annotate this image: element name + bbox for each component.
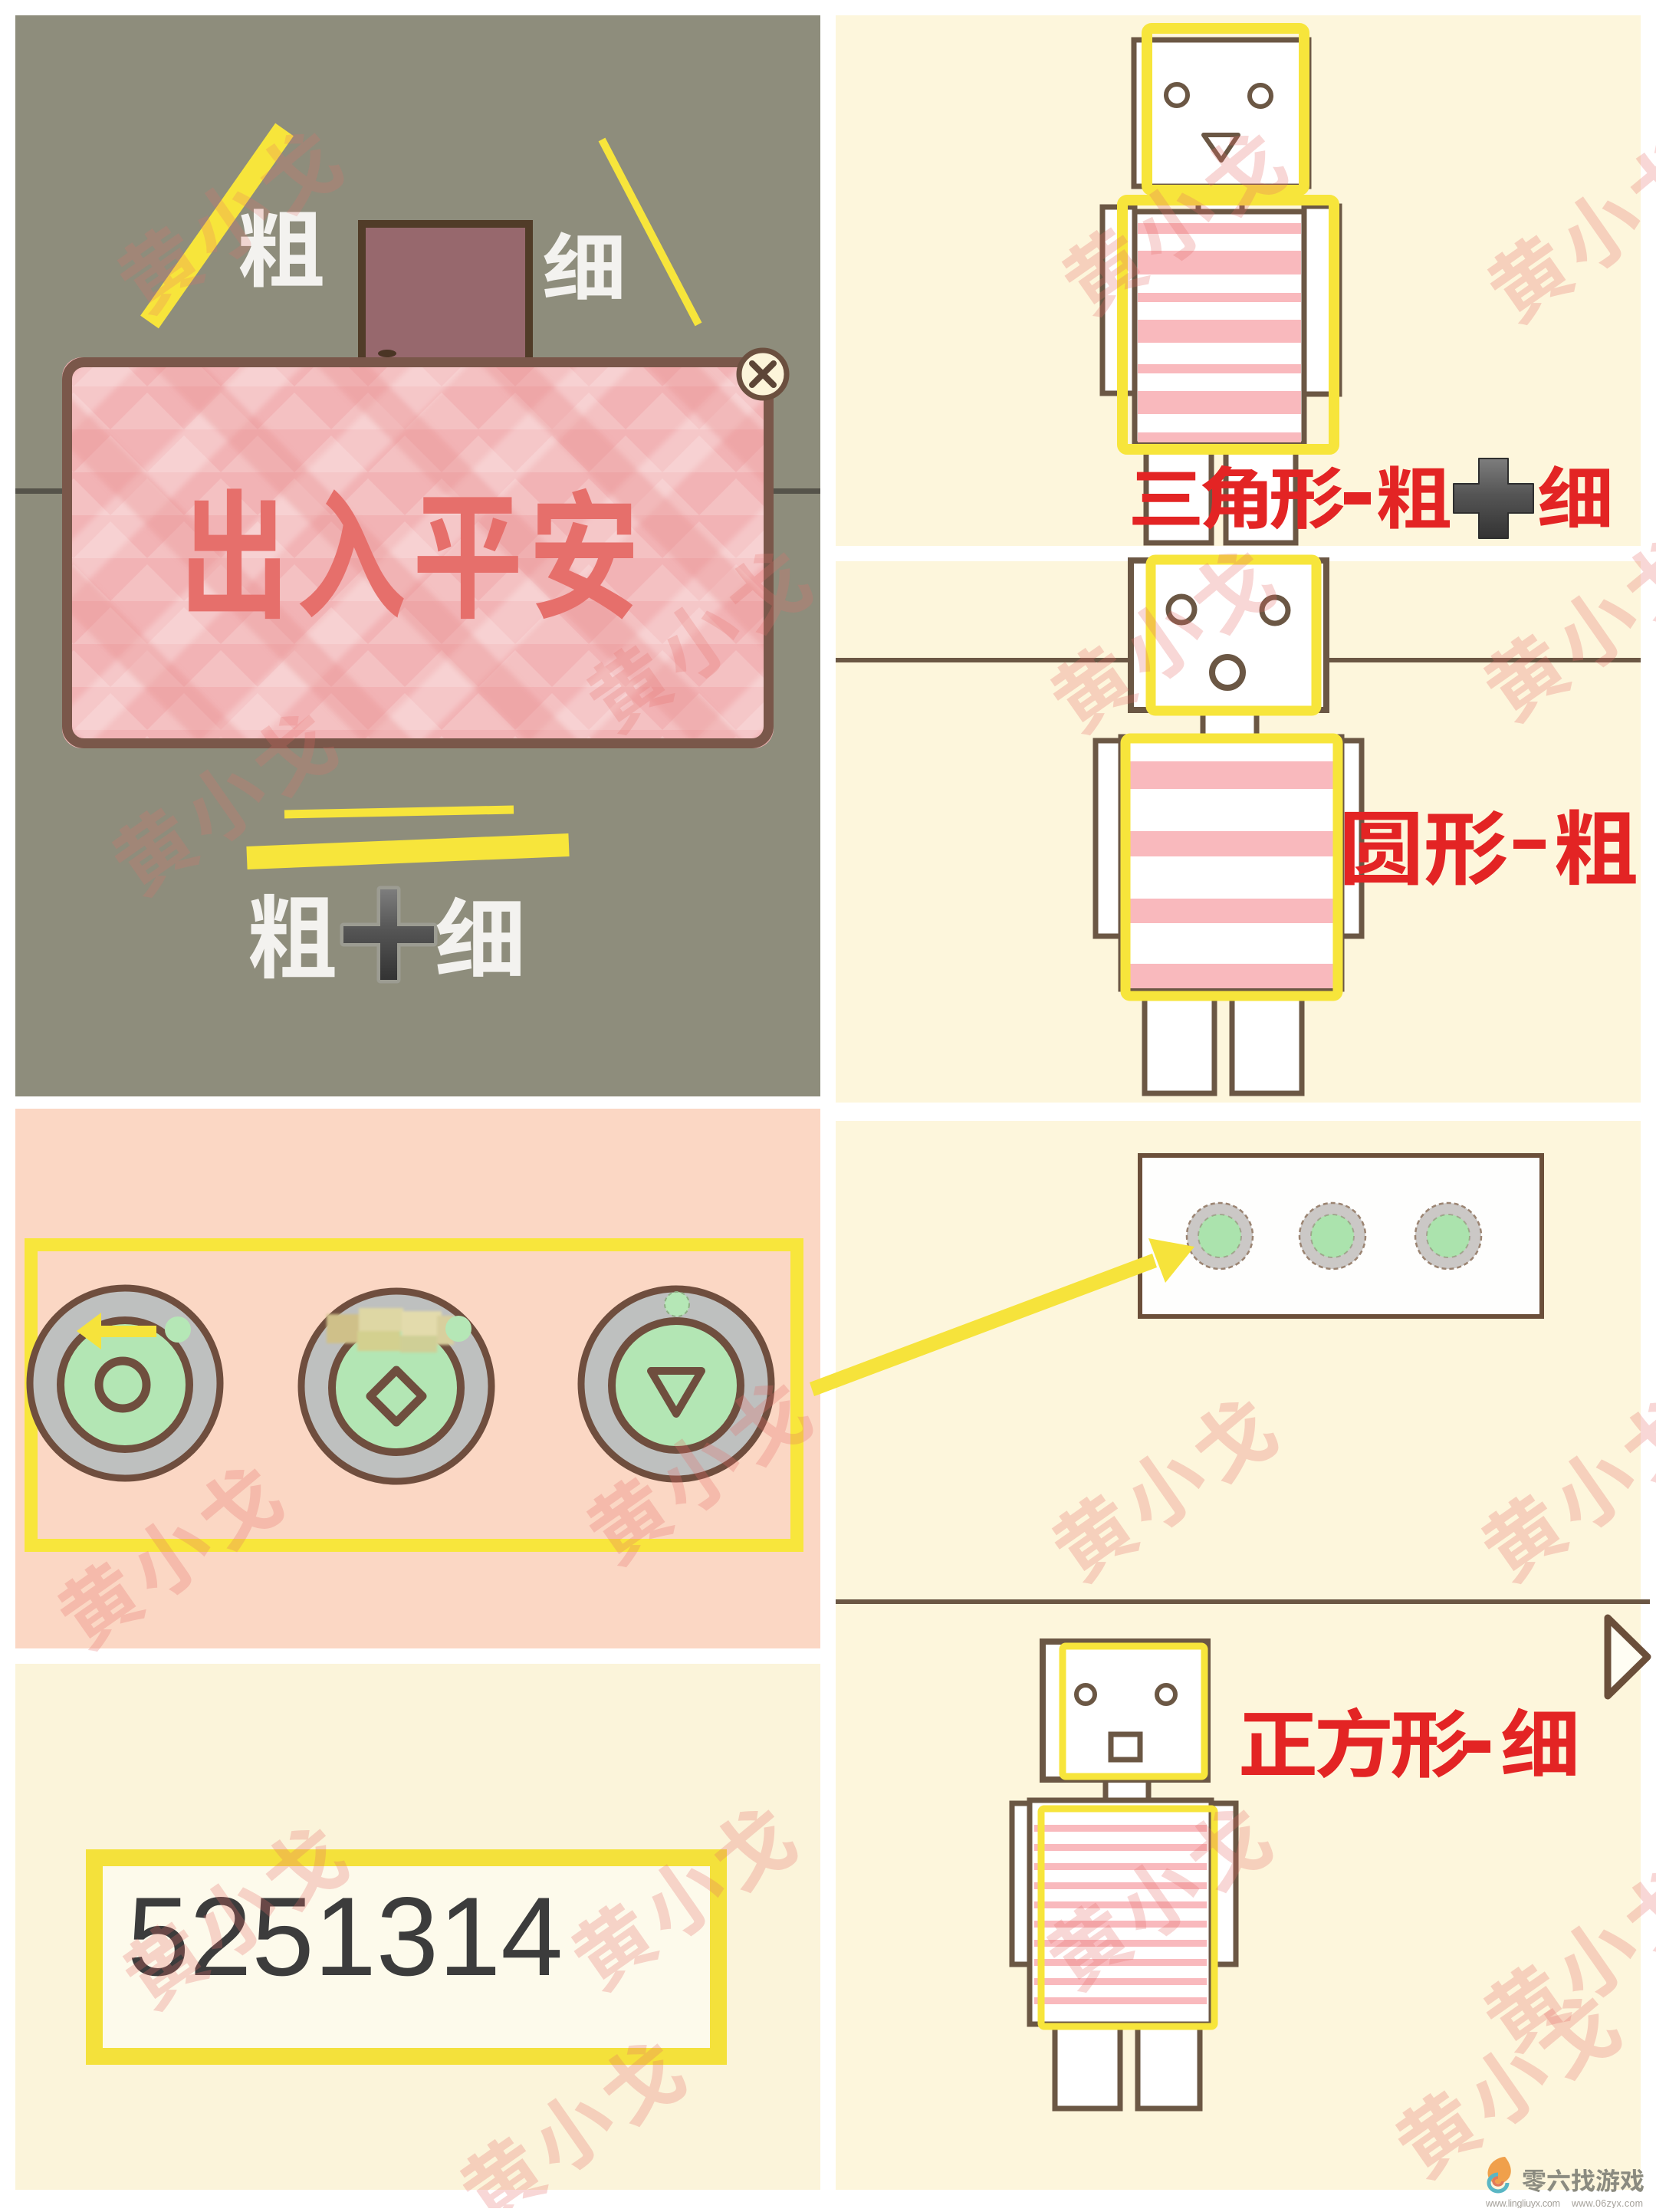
svg-text:www.lingliuyx.com: www.lingliuyx.com — [1485, 2198, 1560, 2208]
svg-text:www.06zyx.com: www.06zyx.com — [1571, 2198, 1643, 2208]
